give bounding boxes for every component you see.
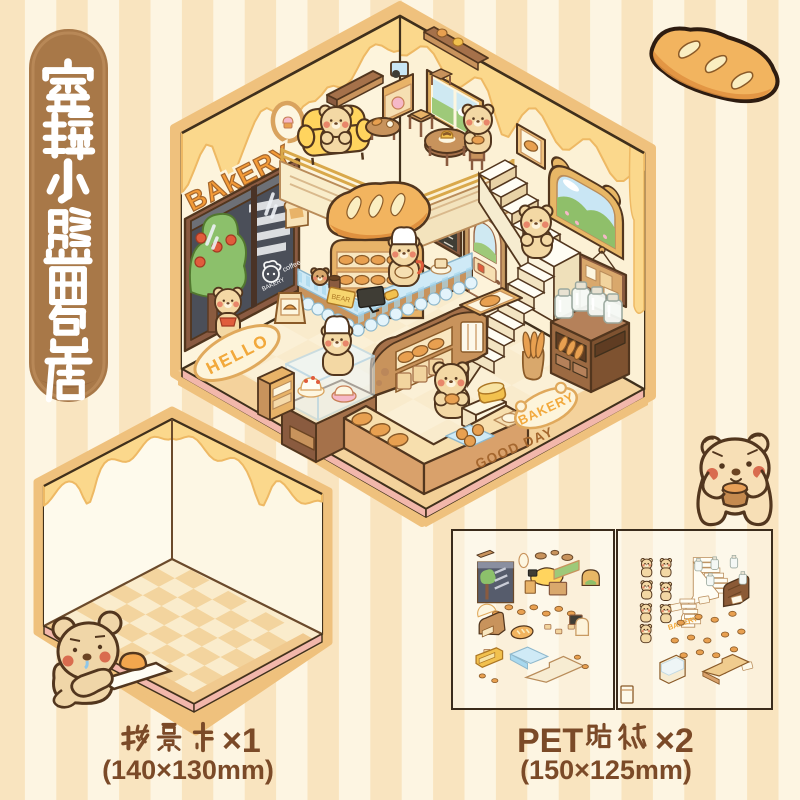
svg-text:(140×130mm): (140×130mm)	[102, 755, 274, 785]
svg-text:(150×125mm): (150×125mm)	[520, 755, 692, 785]
